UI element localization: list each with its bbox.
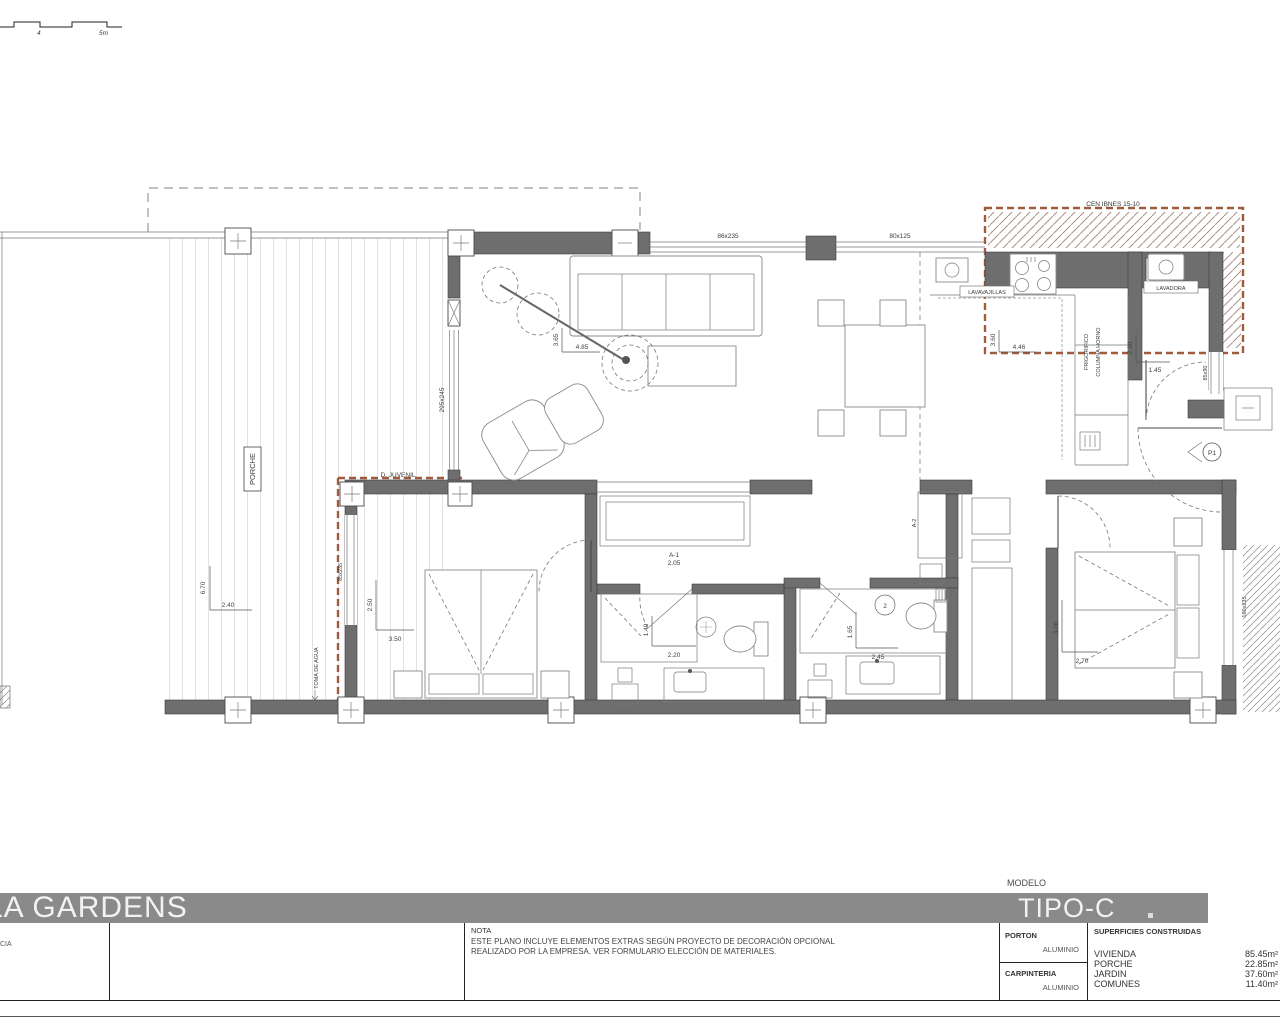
wardrobe-column: A-2 [912,492,1012,702]
wardrobe-a1-ref: A-1 [669,552,680,559]
utility-zone-label: CEN IBNES 15-10 [1086,201,1140,208]
vanity-1 [664,668,764,702]
porton-value: ALUMINIO [1043,945,1079,954]
window-label-entry: 85x90 [1203,366,1209,381]
pillar-plus [800,697,826,723]
titleblock-cell-empty [110,923,465,1000]
surface-value: 85.45m² [1245,949,1278,959]
window-label-top-right: 80x125 [889,233,911,240]
title-dot [1148,913,1153,918]
surface-row: VIVIENDA 85.45m² [1094,949,1278,959]
window-label-bed1: 85x235 [338,563,344,581]
carpinteria-label: CARPINTERIA [1005,969,1056,978]
kitchen-sink [936,258,968,282]
pillar-plus [548,697,574,723]
dim-porch-v: 6.70 [200,581,207,594]
dim-kitchen-h: 4.46 [1013,344,1026,351]
floor-plan-svg: 4 5m D. JUVENIL CEN IBNES 15-10 PORCHE 6… [0,0,1280,893]
window-label-living: 295x245 [439,387,446,412]
bathroom-1: 1.40 2.20 [601,589,768,704]
pillar-plus [448,482,472,506]
dim-hall-h: 1.45 [1149,367,1162,374]
porton-label: PORTON [1005,931,1037,940]
surface-value: 37.60m² [1245,969,1278,979]
pillar-minus [612,230,638,256]
carpinteria-value: ALUMINIO [1043,983,1079,992]
toilet-2 [906,600,947,632]
titleblock-nota: NOTA ESTE PLANO INCLUYE ELEMENTOS EXTRAS… [465,923,1000,1000]
dim-living-h: 4.85 [576,344,589,351]
dim-bed2-v: 3.06 [1053,621,1060,634]
dim-bed2-h: 2.70 [1076,658,1089,665]
surface-value: 11.40m² [1246,979,1278,989]
dim-kitchen-v: 3.60 [990,333,997,346]
nightstand [1174,672,1202,698]
project-title: LA GARDENS [0,893,188,923]
washer-label: LAVADORA [1156,286,1185,292]
pillar-plus [338,697,364,723]
dining-set [818,300,925,436]
model-title: TIPO-C [1018,893,1116,923]
scale-label-4: 4 [37,30,41,37]
surfaces-header: SUPERFICIES CONSTRUIDAS [1094,927,1201,936]
pillar-plus [225,697,251,723]
surface-name: VIVIENDA [1094,949,1136,959]
bath2-ref: 2 [883,603,887,610]
dim-porch-h: 2.40 [222,602,235,609]
surface-name: PORCHE [1094,959,1133,969]
wardrobe-a1: A-1 2.05 [600,496,750,567]
dishwasher-label: LAVAVAJILLAS [968,290,1006,296]
vanity-2 [846,656,940,694]
titleblock-surfaces: SUPERFICIES CONSTRUIDAS VIVIENDA 85.45m²… [1088,923,1280,1000]
dim-bed1-h: 3.50 [389,636,402,643]
bedroom-2: 3.06 2.70 [1053,496,1202,698]
surface-name: JARDIN [1094,969,1127,979]
title-bar: LA GARDENS TIPO-C [0,893,1208,923]
titleblock-materials: PORTON ALUMINIO CARPINTERIA ALUMINIO [1000,923,1088,1000]
fridge-label: FRIGORIFICO [1084,333,1090,370]
pillar-plus [340,482,364,506]
surface-row: COMUNES 11.40m² [1094,979,1278,989]
nota-line-1: ESTE PLANO INCLUYE ELEMENTOS EXTRAS SEGÚ… [471,937,993,947]
nightstand [394,671,422,698]
cooktop [1010,254,1056,294]
pillar-plus [1190,697,1216,723]
sofa [570,256,762,336]
window-label-top-left: 86x235 [717,233,739,240]
dining-table [845,325,925,407]
bottom-border-line [0,1000,1280,1001]
scale-bar: 4 5m [0,22,122,37]
toilet-1 [724,622,768,656]
modelo-label: MODELO [1007,878,1046,888]
pillar-plus [225,228,251,254]
surface-row: PORCHE 22.85m² [1094,959,1278,969]
materials-divider [1000,962,1087,963]
bathroom-2: 2 1.65 2.45 [800,583,947,698]
dim-living-v: 3.65 [553,333,560,346]
left-partial-text: CIA [0,941,12,948]
surface-value: 22.85m² [1245,959,1278,969]
scale-label-5m: 5m [99,30,109,37]
living-room: 3.65 4.85 [477,256,762,485]
dim-bath2-v: 1.65 [847,625,854,638]
dim-bath1-h: 2.20 [668,652,681,659]
nightstand [1174,518,1202,546]
titleblock-cell-left: CIA [0,923,110,1000]
porch: PORCHE 6.70 2.40 TOMA DE AGUA [0,232,450,708]
dim-hall-v: 2.30 [1127,341,1134,354]
nota-line-2: REALIZADO POR LA EMPRESA. VER FORMULARIO… [471,947,993,957]
wardrobe-back-wall [597,482,750,492]
water-tap-label: TOMA DE AGUA [314,647,320,689]
porch-label: PORCHE [248,453,257,485]
bottom-border-line-2 [0,1016,1280,1017]
dim-bed1-v: 2.50 [367,598,374,611]
surface-row: JARDIN 37.60m² [1094,969,1278,979]
wardrobe-a2-ref: A-2 [912,519,918,528]
oven-column-label: COLUMNA HORNO [1096,327,1102,377]
nightstand [541,671,569,698]
surface-name: COMUNES [1094,979,1140,989]
entry-door-ref: P1 [1208,450,1216,457]
dim-bath2-h: 2.45 [872,654,885,661]
washing-machine [1148,254,1184,280]
coffee-table [648,346,736,386]
wardrobe-a1-dim: 2.05 [668,560,681,567]
floor-plan-page: 4 5m D. JUVENIL CEN IBNES 15-10 PORCHE 6… [0,0,1280,1024]
nota-label: NOTA [471,926,993,935]
pillar-plus [448,230,474,256]
